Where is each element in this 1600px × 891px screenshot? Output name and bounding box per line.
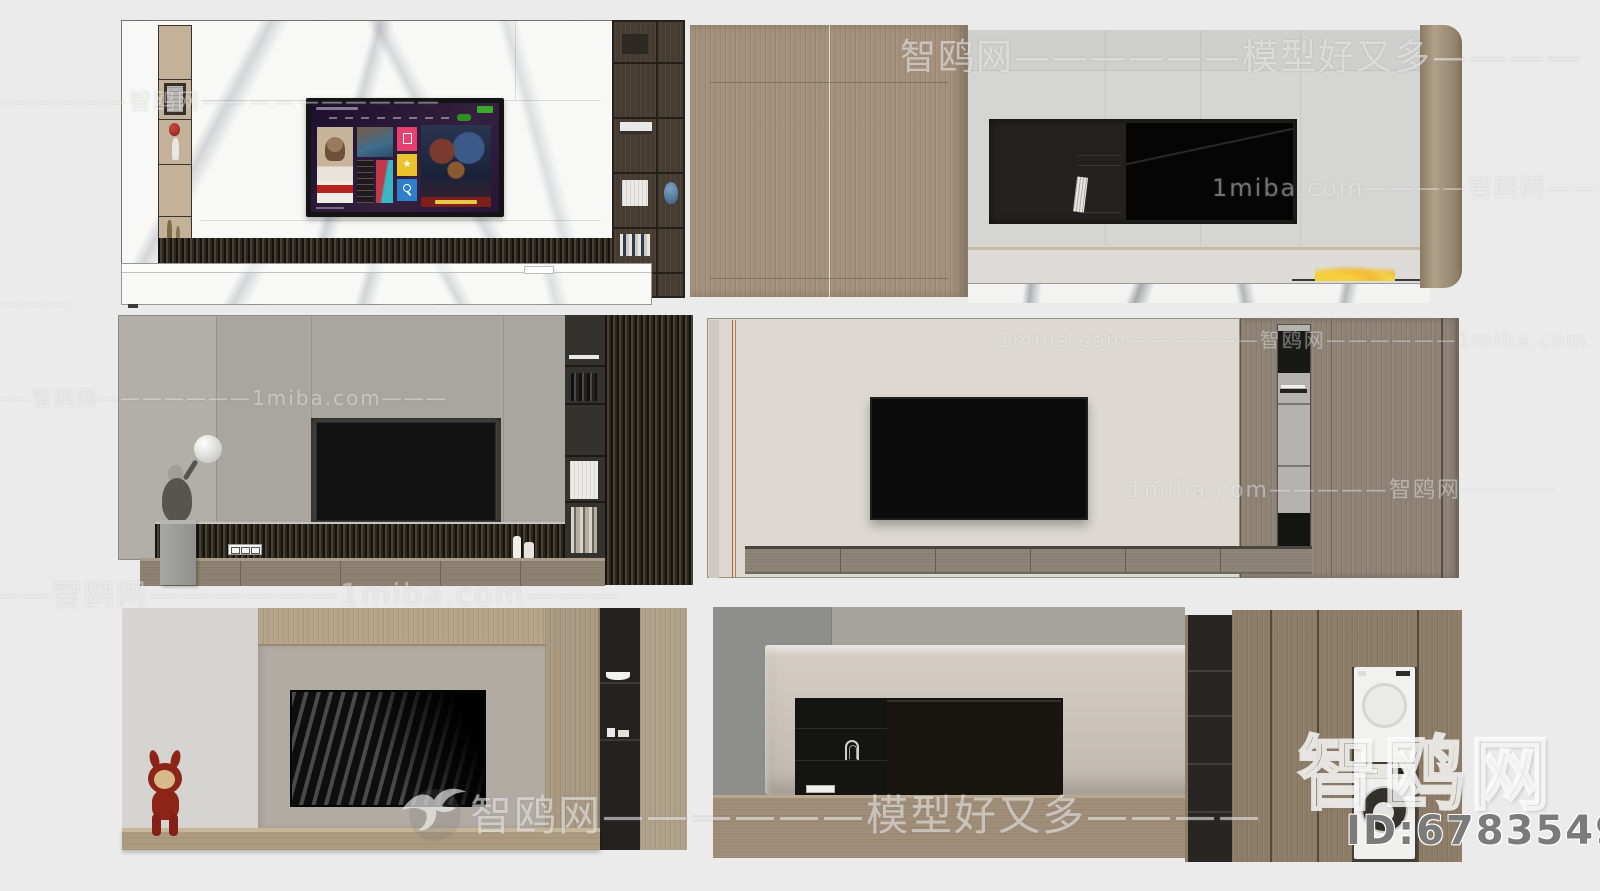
tv-ui-nav-tabs [329,117,449,119]
bench-foot [128,304,138,308]
tv-screen-off [887,700,1061,793]
niche-shelf-line [795,728,887,729]
tv-screen-streaming-ui: ★ [311,103,499,212]
shelf-seam [935,549,936,572]
wall-seam [1300,30,1301,245]
niche-shelf-line [600,682,640,684]
white-cup [607,728,615,737]
wall-upper-band [968,30,1420,71]
mini-sign-plate [228,544,262,555]
shelf-seam [840,549,841,572]
figurine-body [162,478,192,522]
shelf-white-box [622,180,648,206]
niche-shelf-line [1078,212,1121,213]
white-vase [513,536,521,558]
design-wood-niche-wall [690,25,1462,303]
tv-screen-off [1126,123,1293,220]
dryer-display [1396,671,1410,676]
niche-box-decor [159,119,191,165]
blue-vase [664,182,678,204]
copper-inlay-line [735,320,736,578]
niche-shelf-line [1278,403,1310,405]
niche-white-device [1281,385,1305,388]
red-balloon-ornament [169,123,180,136]
cabinet-seam [1441,318,1443,578]
dark-shelving-unit [612,20,685,298]
niche-shelf-line [600,739,640,741]
dark-shelf-column [565,315,605,560]
shelf-white-device [620,122,652,134]
wood-wardrobe [690,25,968,297]
search-icon-handle [407,191,412,196]
arch-ornament [845,740,859,760]
panel-seam [515,21,516,100]
marble-bench [121,263,652,305]
niche-box [159,164,191,217]
tv-ui-tile-pink-glyph [403,133,412,144]
stacked-books [538,548,578,558]
wardrobe-seam [710,82,948,83]
shelf-line [565,455,605,457]
niche-dark-object [1278,331,1310,373]
picture-frame [164,83,186,115]
shelf-line [565,501,605,503]
drawer-seam [440,561,441,586]
shelf-white-box [570,461,598,499]
shelf-line [1188,811,1232,813]
shelf-white-slab [569,355,599,359]
tv-wall-models-preview: ★ [0,0,1600,891]
drawer-seam [520,561,521,586]
watermark-band: ——— [0,292,72,317]
tv-ui-poster-portrait [317,127,353,203]
shelf-line [1188,670,1232,672]
shelf-seam [1030,549,1031,572]
tv-ui-poster-duotone [376,160,393,203]
niche-device-base [1280,389,1307,393]
balloon-figurine-sculpture [160,435,224,585]
white-vase [524,542,534,558]
sign-glyph [251,547,260,554]
bunny-leg [169,814,178,836]
floating-media-shelf [745,546,1312,574]
tv-ui-tile-search [397,179,417,201]
shelf-seam [1125,549,1126,572]
tv-ui-tile-landscape [357,127,393,157]
tv-ui-statusbar [316,107,358,110]
slatted-side-column [605,315,693,585]
wood-end-panel [640,608,687,850]
tv-frame: ★ [306,98,504,217]
sign-glyph [231,547,240,554]
niche-box-artframe [159,79,191,120]
fireplace-flames [1315,263,1395,281]
niche-shelf-line [1078,155,1121,156]
dryer-button [1358,671,1366,676]
niche-box [159,26,191,80]
bench-remote-label [524,266,554,274]
tv-screen-off [316,422,496,521]
tv-ui-brand-badge [477,106,493,113]
dark-display-niche [600,608,640,850]
media-device-label [806,785,835,793]
figurine-arm [183,459,199,480]
drawer-seam [340,561,341,586]
white-figurine [172,138,179,160]
tv-ui-active-tab [457,114,471,121]
shelf-line [1188,715,1232,717]
niche-shelf-line [795,760,887,761]
pedestal [160,520,196,585]
shelf-books [571,507,597,553]
white-cup [618,730,629,737]
red-bunny-doll [144,750,194,836]
dark-shelf-column [1185,615,1232,862]
cabinet-seam [1270,610,1272,862]
arch-ornament-inner [849,745,857,759]
marble-base [968,283,1430,303]
sign-glyph [241,547,250,554]
media-niche [989,119,1297,224]
wall-edge-strip [709,320,719,578]
bunny-leg [152,814,161,836]
tv-ui-tile-star: ★ [397,154,417,176]
wood-side-cabinet [1240,318,1459,578]
tv-ui-poster-large-title [435,200,477,204]
slatted-base-band [158,238,622,263]
bunny-face [154,770,175,789]
panel-seam [201,220,601,221]
drawer-seam [240,561,241,586]
shelf-line [1188,763,1232,765]
wood-side-panel [545,608,600,828]
tv-ui-poster-face [325,137,345,161]
curved-wood-column [1420,25,1462,288]
picture-art [167,86,183,112]
bench-top-face [122,264,651,273]
seagull-logo-icon [398,782,470,838]
tall-display-niche [1277,324,1311,552]
copper-inlay-line [732,320,733,578]
design-marble-tv-wall: ★ [121,20,685,303]
niche-shelf-line [1278,465,1310,467]
model-id-watermark: ID:678354986 [1346,808,1600,854]
shelf-seam [1220,549,1221,572]
shelf-line [565,365,605,367]
display-niche-column [158,25,192,248]
tv-ui-tile-pink [397,127,417,151]
shelf-books [620,234,650,256]
tv-screen-off [870,397,1088,520]
shelf-line [565,403,605,405]
tv-recess [311,418,501,525]
tv-ui-footer [316,207,344,209]
cabinet-seam [1331,318,1332,578]
shelf-books [571,373,597,401]
design-cream-minimal-wall [707,318,1458,578]
media-niche [795,698,1063,795]
balloon [194,435,222,463]
wardrobe-seam [710,278,948,279]
niche-shelf-line [1078,165,1121,166]
design-gray-panel-wall [118,315,693,585]
wardrobe-seam [829,25,830,297]
tv-ui-poster-title-band [317,185,353,193]
tv-ui-poster-dark [357,160,374,203]
shelf-dark-box [622,34,648,54]
white-bowl [606,672,630,680]
tv-ui-poster-large [421,125,491,207]
leaning-book [1073,176,1088,212]
